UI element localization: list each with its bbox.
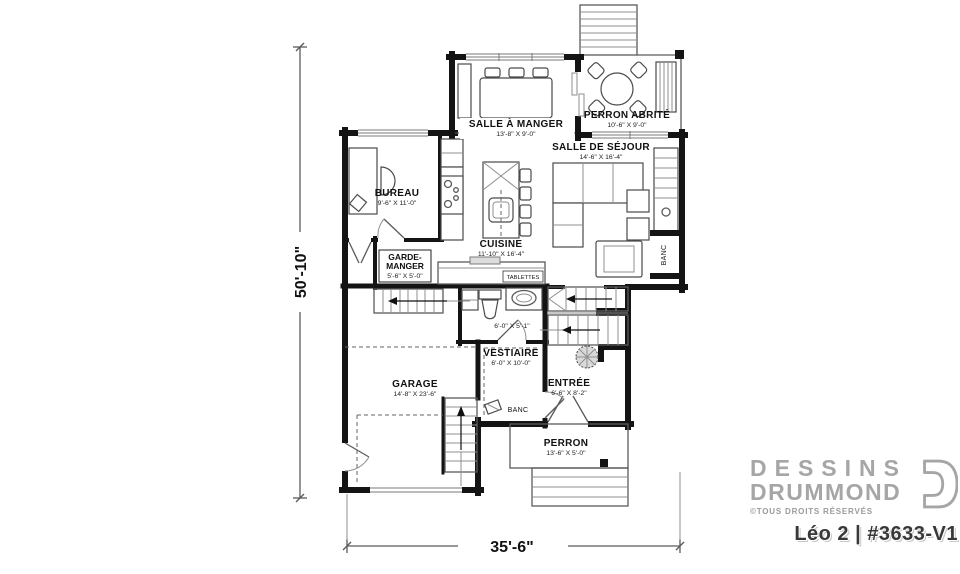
salle-a-manger-label: SALLE À MANGER [469, 117, 564, 130]
vestiaire-bench [485, 400, 502, 414]
width-dimension: 35'-6" [490, 539, 533, 556]
pantry-door [378, 219, 404, 244]
drummond-d-logo-icon [914, 456, 958, 512]
salle-a-manger-dims: 13'-8" X 9'-0" [496, 131, 536, 138]
perron-label: PERRON [544, 438, 589, 449]
tablettes-label: TABLETTES [507, 275, 540, 281]
garage-dims: 14'-8" X 23'-6" [394, 391, 438, 398]
kitchen-furniture [438, 139, 545, 284]
entree-plant [576, 346, 598, 368]
stairs-garage [445, 398, 477, 486]
cuisine-label: CUISINE [480, 239, 523, 250]
living-room-window [592, 131, 668, 139]
vestiaire-label: VESTIAIRE [483, 348, 539, 359]
bureau-dims: 9'-6" X 11'-0" [378, 200, 417, 207]
entree-dims: 6'-6" X 8'-2" [551, 390, 587, 397]
banc-sejour-label: BANC [661, 245, 668, 266]
perron-abrite-dims: 10'-6" X 9'-0" [607, 122, 647, 129]
stairs-basement [374, 289, 470, 313]
front-door [548, 396, 588, 428]
powder-room-fixtures [462, 288, 542, 319]
logo-text-line2: DRUMMOND [750, 480, 907, 504]
garage-door [370, 485, 462, 495]
bureau-window [358, 129, 428, 137]
cuisine-dims: 11'-10" X 16'-4" [478, 251, 525, 258]
garage-side-door [341, 443, 369, 471]
banc-vestiaire-label: BANC [508, 407, 529, 414]
vestiaire-dims: 6'-0" X 10'-0" [491, 360, 531, 367]
dimension-width: 35'-6" [343, 472, 684, 556]
logo-text-line1: DESSINS [750, 456, 907, 480]
copyright-text: ©TOUS DROITS RÉSERVÉS [750, 507, 907, 516]
salle-de-sejour-label: SALLE DE SÉJOUR [552, 140, 650, 153]
dining-window [466, 53, 564, 61]
front-porch [510, 424, 628, 506]
bureau-french-doors [349, 236, 371, 263]
salle-de-sejour-dims: 14'-6" X 16'-4" [580, 154, 624, 161]
height-dimension: 50'-10" [293, 246, 310, 298]
garde-manger-label-2: MANGER [386, 261, 424, 271]
entree-label: ENTRÉE [548, 376, 590, 389]
patio-door [572, 72, 584, 116]
bureau-label: BUREAU [375, 188, 420, 199]
perron-dims: 13'-6" X 5'-0" [546, 450, 586, 457]
dimension-height: 50'-10" [293, 43, 310, 502]
porch-steps [580, 5, 637, 55]
garage-label: GARAGE [392, 379, 438, 390]
plan-number: Léo 2 | #3633-V1 [742, 523, 958, 546]
salle-eau-dims: 6'-0" X 5'-1" [494, 323, 530, 330]
garde-manger-dims: 5'-6" X 5'-0" [387, 273, 423, 280]
brand-block: DESSINS DRUMMOND ©TOUS DROITS RÉSERVÉS L… [742, 456, 958, 546]
perron-abrite-label: PERRON ABRITÉ [584, 108, 670, 121]
